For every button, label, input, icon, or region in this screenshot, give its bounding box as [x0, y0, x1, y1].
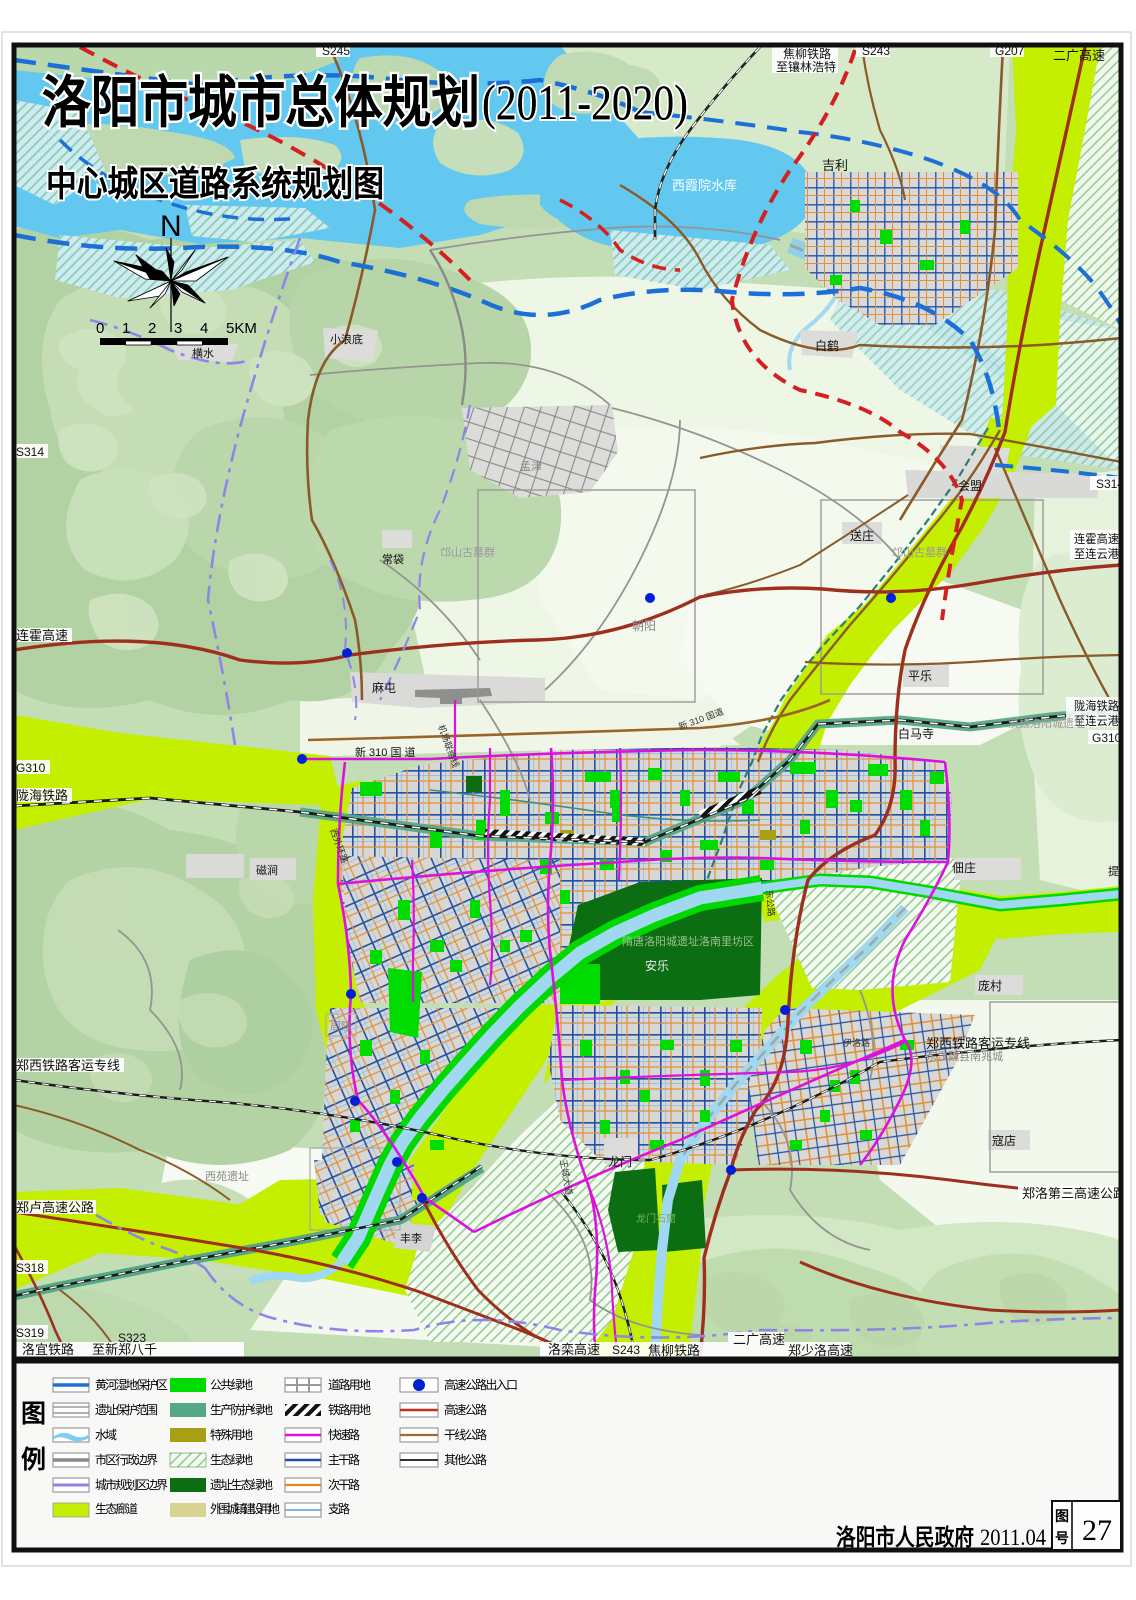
svg-text:生态绿地: 生态绿地: [210, 1452, 253, 1467]
svg-text:洛宜铁路: 洛宜铁路: [22, 1342, 74, 1357]
svg-text:G310: G310: [1092, 731, 1122, 745]
svg-text:2011.04: 2011.04: [980, 1525, 1046, 1550]
svg-text:G310: G310: [16, 761, 46, 775]
svg-text:洛阳市人民政府: 洛阳市人民政府: [836, 1524, 974, 1550]
svg-text:焦柳铁路: 焦柳铁路: [648, 1343, 700, 1358]
svg-text:横水: 横水: [192, 346, 214, 360]
svg-text:生态廊道: 生态廊道: [95, 1501, 138, 1516]
svg-text:陇海铁路: 陇海铁路: [16, 788, 68, 803]
svg-text:安乐: 安乐: [645, 958, 669, 973]
svg-text:1: 1: [122, 320, 130, 337]
svg-text:邙山古墓群: 邙山古墓群: [892, 545, 947, 559]
svg-text:会盟: 会盟: [958, 479, 982, 493]
svg-text:图: 图: [1055, 1508, 1069, 1524]
svg-text:至镶林浩特: 至镶林浩特: [776, 59, 836, 74]
svg-text:S243: S243: [612, 1343, 640, 1357]
svg-text:送庄: 送庄: [850, 528, 874, 543]
svg-text:庞村: 庞村: [978, 978, 1002, 993]
svg-text:陇海铁路: 陇海铁路: [1074, 698, 1119, 713]
svg-text:磁涧: 磁涧: [256, 864, 278, 877]
svg-text:铁路用地: 铁路用地: [328, 1402, 371, 1417]
svg-text:干线公路: 干线公路: [444, 1427, 487, 1442]
svg-text:2: 2: [148, 320, 156, 337]
svg-text:水域: 水域: [95, 1428, 117, 1442]
svg-text:白马寺: 白马寺: [898, 726, 934, 741]
svg-text:白鹤: 白鹤: [815, 338, 839, 353]
svg-text:S318: S318: [16, 1261, 44, 1275]
svg-text:丰李: 丰李: [400, 1231, 422, 1245]
svg-text:5KM: 5KM: [226, 320, 257, 337]
svg-text:伊洛路: 伊洛路: [843, 1037, 870, 1048]
svg-text:例: 例: [21, 1446, 46, 1474]
svg-text:郑西铁路客运专线: 郑西铁路客运专线: [926, 1036, 1030, 1051]
svg-text:市区行政边界: 市区行政边界: [95, 1452, 158, 1467]
svg-text:27: 27: [1082, 1514, 1112, 1547]
svg-text:3: 3: [174, 320, 182, 337]
svg-text:邙山古墓群: 邙山古墓群: [440, 545, 495, 559]
svg-text:连霍高速: 连霍高速: [16, 628, 68, 643]
svg-text:生产防护绿地: 生产防护绿地: [210, 1402, 273, 1417]
svg-text:西苑遗址: 西苑遗址: [205, 1169, 249, 1183]
svg-text:龙门: 龙门: [608, 1154, 632, 1169]
svg-text:公共绿地: 公共绿地: [210, 1377, 253, 1392]
svg-text:平乐: 平乐: [908, 669, 932, 683]
svg-text:郑西铁路客运专线: 郑西铁路客运专线: [16, 1058, 120, 1073]
svg-text:至新郑八千: 至新郑八千: [92, 1342, 157, 1357]
svg-text:特殊用地: 特殊用地: [210, 1427, 253, 1442]
svg-text:黄河湿地保护区: 黄河湿地保护区: [95, 1377, 168, 1392]
svg-text:S319: S319: [16, 1326, 44, 1340]
svg-text:图: 图: [21, 1400, 46, 1428]
svg-text:S314: S314: [16, 445, 44, 459]
svg-text:高速公路出入口: 高速公路出入口: [444, 1377, 518, 1392]
svg-text:东汉魏县南兆城: 东汉魏县南兆城: [926, 1049, 1003, 1063]
svg-text:西霞院水库: 西霞院水库: [672, 178, 737, 193]
svg-text:城市规划区边界: 城市规划区边界: [95, 1477, 168, 1492]
svg-text:0: 0: [96, 320, 104, 337]
svg-text:佃庄: 佃庄: [952, 860, 976, 875]
svg-text:焦柳铁路: 焦柳铁路: [783, 46, 831, 61]
svg-text:高速公路: 高速公路: [444, 1402, 487, 1417]
svg-text:郑卢高速公路: 郑卢高速公路: [16, 1200, 94, 1215]
svg-text:龙门石窟: 龙门石窟: [636, 1212, 676, 1225]
svg-text:主干路: 主干路: [328, 1452, 360, 1467]
svg-text:麻屯: 麻屯: [372, 680, 396, 695]
svg-text:至连云港: 至连云港: [1074, 546, 1119, 561]
svg-text:快速路: 快速路: [328, 1427, 360, 1442]
svg-text:遗址生态绿地: 遗址生态绿地: [210, 1477, 273, 1492]
svg-text:支路: 支路: [328, 1501, 350, 1516]
svg-text:道路用地: 道路用地: [328, 1377, 371, 1392]
svg-text:寇店: 寇店: [992, 1133, 1016, 1148]
svg-text:中心城区道路系统规划图: 中心城区道路系统规划图: [46, 165, 384, 204]
svg-text:吉利: 吉利: [822, 158, 848, 173]
svg-text:其他公路: 其他公路: [444, 1452, 487, 1467]
svg-text:二广高速: 二广高速: [733, 1332, 785, 1347]
svg-text:朝阳: 朝阳: [632, 619, 656, 633]
svg-text:周陵: 周陵: [330, 1020, 352, 1033]
svg-text:郑洛第三高速公路: 郑洛第三高速公路: [1022, 1186, 1126, 1201]
svg-text:孟津: 孟津: [520, 460, 542, 473]
svg-text:(2011-2020): (2011-2020): [482, 74, 688, 130]
svg-text:常袋: 常袋: [382, 552, 404, 566]
svg-text:遗址保护范围: 遗址保护范围: [95, 1403, 158, 1417]
svg-text:4: 4: [200, 320, 208, 337]
svg-text:新 310 国 道: 新 310 国 道: [355, 745, 416, 759]
svg-text:隋唐洛阳城遗址洛南里坊区: 隋唐洛阳城遗址洛南里坊区: [622, 934, 754, 948]
svg-text:次干路: 次干路: [328, 1477, 360, 1492]
svg-text:二广高速: 二广高速: [1053, 48, 1105, 63]
svg-text:连霍高速: 连霍高速: [1074, 531, 1119, 546]
svg-text:外围城镇建设用地: 外围城镇建设用地: [210, 1502, 280, 1516]
svg-text:洛栾高速: 洛栾高速: [548, 1342, 600, 1357]
svg-text:小浪底: 小浪底: [330, 332, 363, 346]
svg-text:郑少洛高速: 郑少洛高速: [788, 1343, 853, 1358]
svg-text:汉魏洛阳城遗址: 汉魏洛阳城遗址: [1008, 716, 1085, 730]
svg-text:洛阳市城市总体规划: 洛阳市城市总体规划: [42, 71, 480, 134]
svg-text:号: 号: [1055, 1530, 1069, 1546]
